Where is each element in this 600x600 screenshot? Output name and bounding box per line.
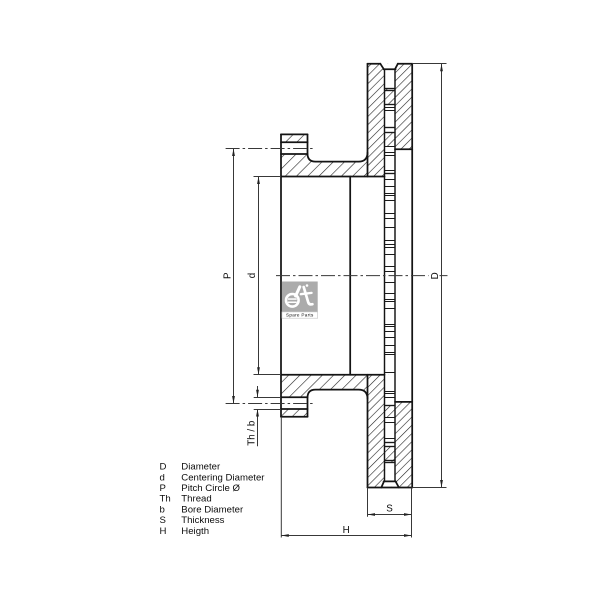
svg-text:Bore Diameter: Bore Diameter bbox=[181, 504, 244, 515]
svg-text:Heigth: Heigth bbox=[181, 526, 209, 537]
svg-text:Th / b: Th / b bbox=[247, 420, 258, 446]
svg-text:H: H bbox=[343, 525, 350, 536]
svg-text:D: D bbox=[160, 462, 167, 473]
svg-text:Centering Diameter: Centering Diameter bbox=[181, 472, 265, 483]
svg-text:S: S bbox=[160, 515, 166, 526]
svg-text:P: P bbox=[223, 272, 234, 279]
svg-text:S: S bbox=[386, 503, 393, 514]
svg-text:b: b bbox=[160, 504, 165, 515]
svg-text:Thickness: Thickness bbox=[181, 515, 224, 526]
svg-text:D: D bbox=[430, 272, 441, 279]
svg-text:d: d bbox=[160, 472, 165, 483]
svg-text:Thread: Thread bbox=[181, 494, 211, 505]
svg-text:Spare Parts: Spare Parts bbox=[286, 313, 314, 318]
svg-text:Pitch Circle Ø: Pitch Circle Ø bbox=[181, 483, 240, 494]
svg-text:d: d bbox=[247, 273, 258, 278]
svg-text:Diameter: Diameter bbox=[181, 462, 221, 473]
svg-text:Th: Th bbox=[160, 494, 171, 505]
svg-text:P: P bbox=[160, 483, 166, 494]
svg-text:H: H bbox=[160, 526, 167, 537]
